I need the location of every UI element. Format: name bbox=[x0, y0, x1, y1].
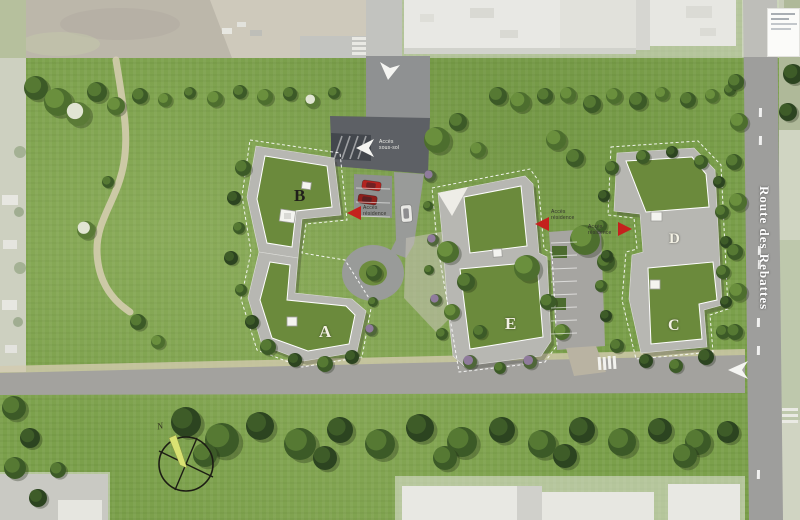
tree bbox=[66, 102, 93, 128]
tree bbox=[365, 324, 379, 337]
tree bbox=[77, 221, 97, 241]
compass-needle bbox=[169, 435, 187, 468]
tree bbox=[132, 88, 150, 106]
tree bbox=[727, 324, 745, 342]
tree bbox=[87, 82, 110, 104]
tree bbox=[566, 149, 586, 169]
rooftop-structure-inner bbox=[284, 213, 291, 219]
tree bbox=[102, 176, 116, 189]
legend-text-line bbox=[771, 28, 791, 30]
tree bbox=[227, 191, 243, 206]
tree bbox=[233, 85, 249, 100]
tree bbox=[583, 95, 603, 115]
tree bbox=[130, 314, 148, 332]
tree bbox=[235, 160, 253, 178]
tree bbox=[537, 88, 555, 106]
tree bbox=[470, 142, 488, 160]
tree bbox=[328, 87, 342, 100]
road-name-rebattes: Route des Rebattes bbox=[746, 186, 772, 336]
tree bbox=[705, 89, 721, 104]
legend-text-line bbox=[771, 23, 797, 25]
tree bbox=[423, 201, 434, 212]
tree bbox=[305, 94, 321, 109]
road-entry-approach bbox=[366, 56, 430, 120]
legend-text-line bbox=[771, 13, 795, 15]
legend-text-line bbox=[771, 18, 789, 20]
legend-box bbox=[767, 8, 800, 57]
tree bbox=[648, 418, 675, 444]
tree bbox=[283, 87, 299, 102]
tree bbox=[224, 251, 240, 266]
site-plan-canvas bbox=[0, 0, 800, 520]
car bbox=[400, 205, 412, 223]
red-arrow-access-east bbox=[618, 222, 632, 236]
tree bbox=[608, 428, 640, 459]
tree bbox=[606, 88, 624, 106]
tree bbox=[560, 87, 578, 105]
tree bbox=[655, 87, 671, 102]
tree bbox=[233, 222, 247, 235]
tree bbox=[20, 428, 43, 450]
road-dash bbox=[759, 136, 762, 145]
tree bbox=[246, 412, 278, 443]
tree bbox=[158, 93, 174, 108]
tree bbox=[184, 87, 198, 100]
tree bbox=[436, 328, 450, 341]
tree bbox=[569, 417, 598, 446]
tree bbox=[207, 91, 225, 109]
tree bbox=[546, 130, 569, 152]
tree bbox=[489, 417, 518, 446]
tree bbox=[553, 444, 580, 470]
tree bbox=[449, 113, 469, 133]
tree bbox=[726, 154, 744, 172]
tree bbox=[257, 89, 275, 107]
tree bbox=[727, 244, 745, 262]
tree bbox=[680, 92, 698, 110]
road-dash bbox=[757, 346, 760, 355]
tree bbox=[365, 429, 399, 462]
tree bbox=[598, 190, 612, 203]
tree bbox=[510, 92, 533, 114]
green-roof-a bbox=[260, 262, 355, 351]
tree bbox=[489, 87, 509, 107]
tree bbox=[2, 396, 29, 422]
tree bbox=[235, 284, 249, 297]
tree bbox=[406, 414, 438, 445]
tree bbox=[424, 170, 438, 183]
tree bbox=[717, 421, 742, 445]
tree bbox=[629, 92, 649, 112]
site-plan: B A E D C Route des Rebattes Accès sous-… bbox=[0, 0, 800, 520]
tree bbox=[327, 417, 356, 446]
road-dash bbox=[759, 108, 762, 117]
green-roof-e-upper bbox=[464, 186, 527, 253]
tree bbox=[151, 335, 167, 350]
road-dash bbox=[757, 470, 760, 479]
tree bbox=[313, 446, 340, 472]
